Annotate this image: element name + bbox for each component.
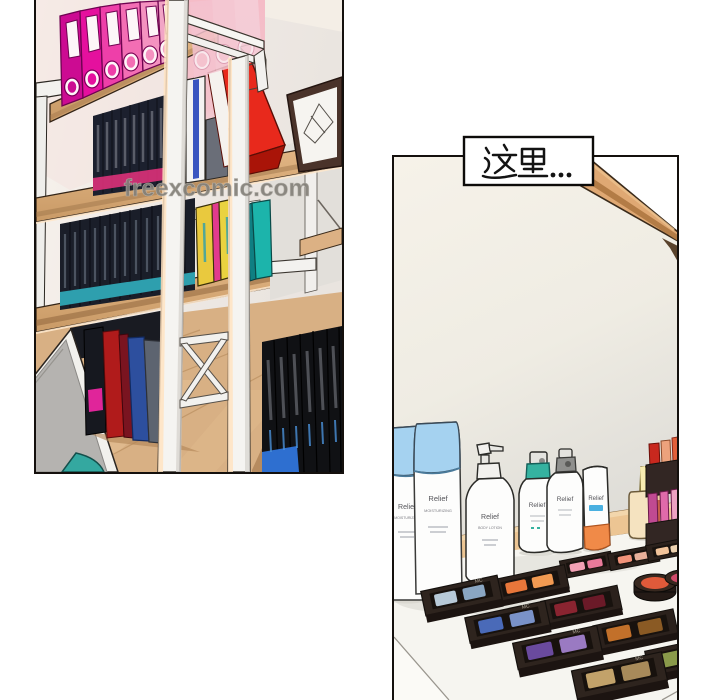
svg-text:Relief: Relief	[428, 494, 448, 503]
svg-text:freexcomic.com: freexcomic.com	[124, 175, 311, 202]
svg-text:BODY LOTION: BODY LOTION	[478, 526, 502, 530]
svg-text:Relief: Relief	[557, 496, 574, 503]
svg-text:Relief: Relief	[588, 496, 604, 502]
svg-text:Relief: Relief	[398, 504, 416, 511]
svg-text:MOISTURIZING: MOISTURIZING	[424, 509, 452, 513]
svg-text:Relief: Relief	[529, 502, 546, 509]
svg-text:Relief: Relief	[481, 514, 499, 521]
